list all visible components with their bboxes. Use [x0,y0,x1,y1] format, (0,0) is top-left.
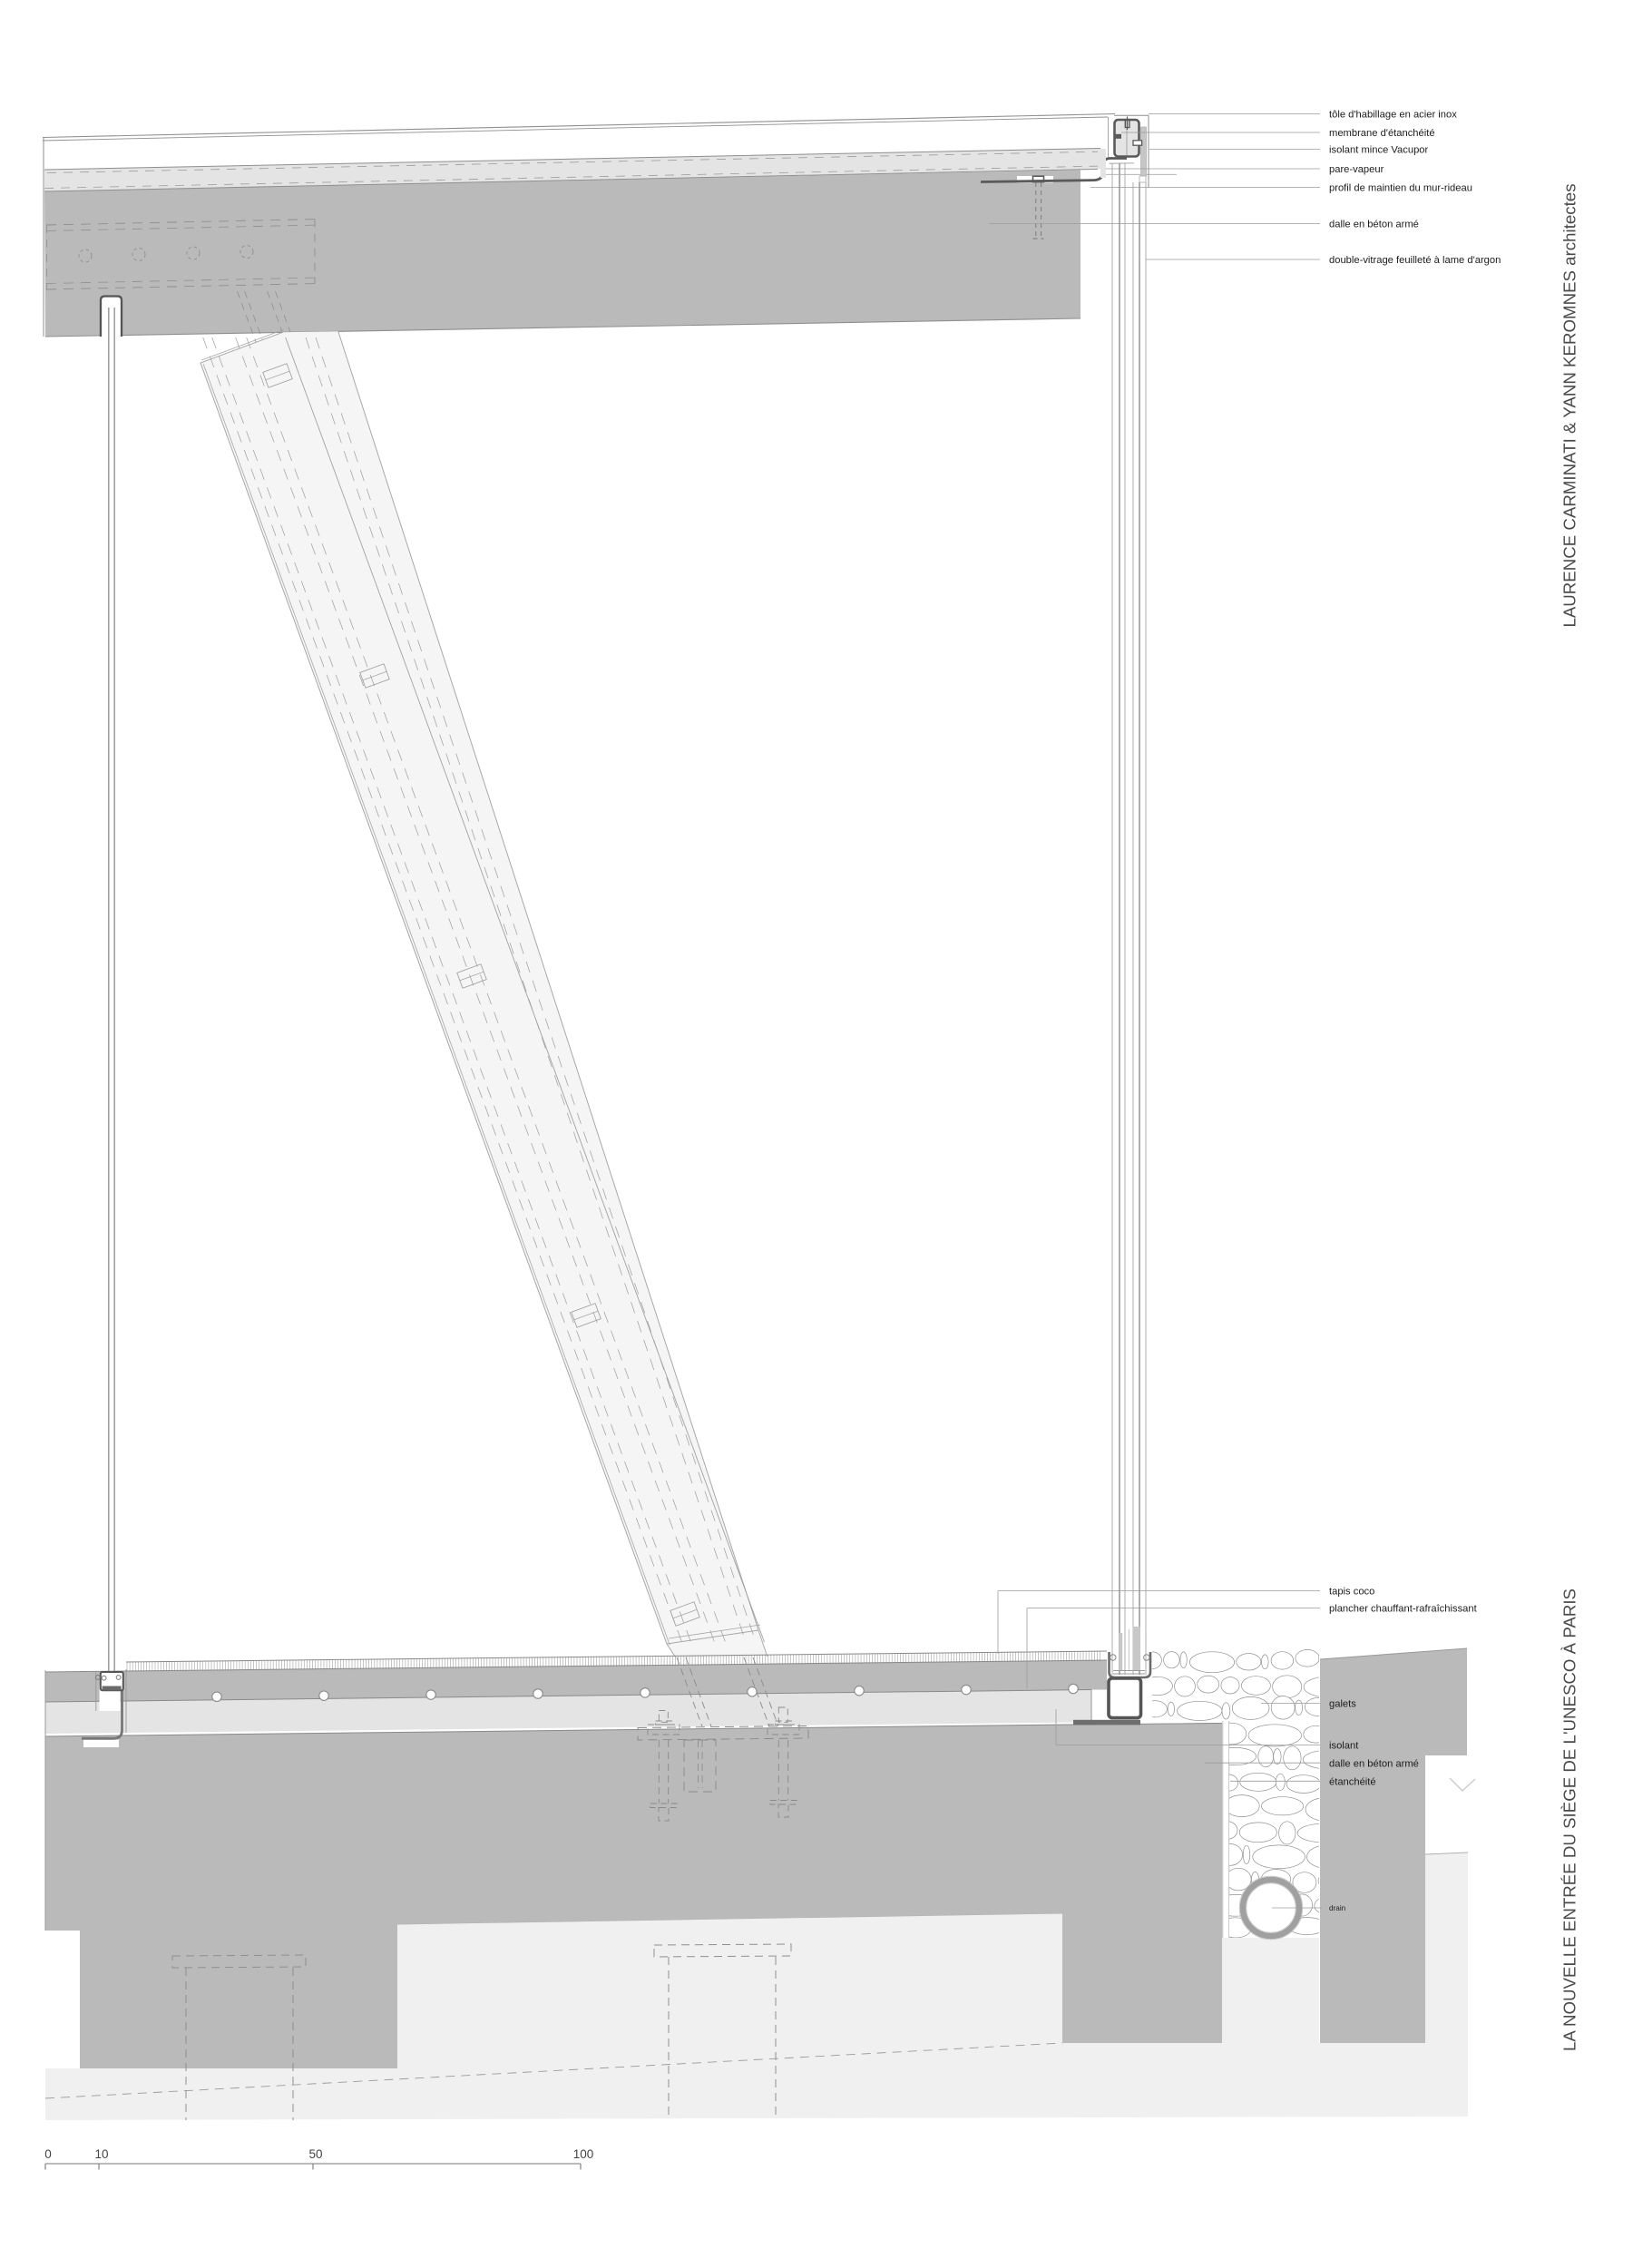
svg-text:10: 10 [94,2147,108,2161]
svg-text:tôle d'habillage en acier inox: tôle d'habillage en acier inox [1329,110,1457,121]
svg-text:membrane d'étanchéité: membrane d'étanchéité [1329,128,1435,139]
svg-text:dalle en béton armé: dalle en béton armé [1329,220,1419,230]
svg-text:0: 0 [44,2147,52,2161]
svg-text:isolant mince Vacupor: isolant mince Vacupor [1329,145,1429,156]
svg-text:100: 100 [573,2147,594,2161]
svg-text:pare-vapeur: pare-vapeur [1329,164,1384,175]
svg-text:50: 50 [308,2147,322,2161]
svg-text:LAURENCE CARMINATI & YANN KERO: LAURENCE CARMINATI & YANN KEROMNES archi… [1560,183,1579,627]
svg-text:drain: drain [1329,1904,1346,1912]
svg-text:profil de maintien du mur-ride: profil de maintien du mur-rideau [1329,183,1472,194]
svg-text:LA NOUVELLE ENTRÉE DU SIÈGE DE: LA NOUVELLE ENTRÉE DU SIÈGE DE L'UNESCO … [1560,1589,1579,2051]
svg-text:isolant: isolant [1329,1741,1359,1752]
svg-text:étanchéité: étanchéité [1329,1776,1376,1787]
svg-text:double-vitrage feuilleté à lam: double-vitrage feuilleté à lame d'argon [1329,255,1501,266]
svg-text:tapis coco: tapis coco [1329,1587,1374,1598]
svg-text:dalle en béton armé: dalle en béton armé [1329,1758,1419,1769]
svg-text:plancher chauffant-rafraîchiss: plancher chauffant-rafraîchissant [1329,1604,1478,1615]
svg-text:galets: galets [1329,1699,1356,1710]
